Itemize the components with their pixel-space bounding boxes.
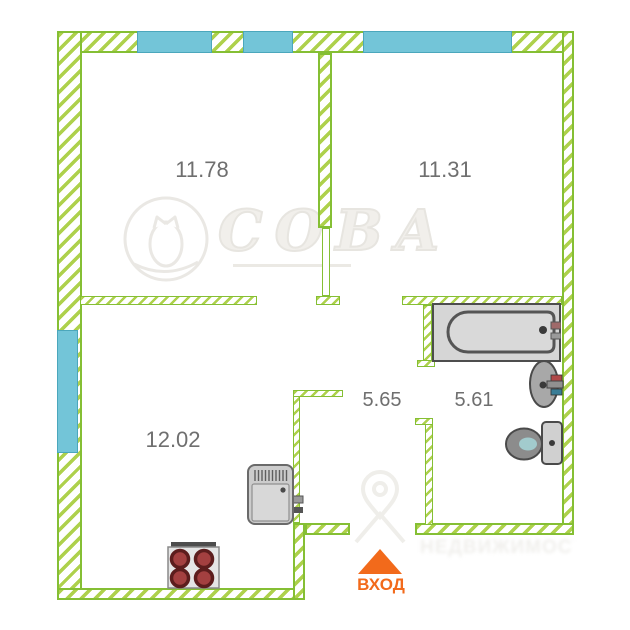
toilet-icon xyxy=(504,420,564,466)
room-area-label-hallway: 5.65 xyxy=(347,389,417,412)
door-leaf-kitchen xyxy=(293,390,343,397)
entrance-arrow-up-icon xyxy=(358,549,402,574)
window-top-2 xyxy=(243,31,293,53)
entrance-label: ВХОД xyxy=(346,575,416,595)
window-top-3 xyxy=(363,31,512,53)
watermark-text-fragment: НЕДВИЖИМОСТЬ xyxy=(420,537,573,558)
owl-logo-icon xyxy=(118,194,222,291)
room-area-label-bathroom: 5.61 xyxy=(439,389,509,412)
wall-entrance-left xyxy=(305,523,350,535)
wall-middle xyxy=(318,53,332,228)
wall-cap-bath-lower xyxy=(415,418,433,425)
window-left xyxy=(57,330,78,453)
watermark-underline xyxy=(233,264,351,267)
wall-left xyxy=(57,31,82,600)
sova-watermark-text: СОВА xyxy=(218,198,452,264)
bathtub-icon xyxy=(432,303,561,362)
wall-bottom-left xyxy=(57,588,305,600)
room-area-label-top-left: 11.78 xyxy=(157,157,247,183)
wall-bathroom-left-upper xyxy=(423,305,432,362)
wall-kitchen-right xyxy=(293,523,305,600)
window-top-1 xyxy=(137,31,212,53)
map-pin-icon xyxy=(348,468,412,551)
door-leaf-room xyxy=(322,228,330,296)
room-area-label-kitchen: 12.02 xyxy=(128,427,218,453)
floor-plan: СОВА НЕДВИЖИМОСТЬ 11.78 11.31 12.02 5.65… xyxy=(0,0,630,630)
sink-icon xyxy=(529,360,564,409)
wall-partition-left xyxy=(80,296,257,305)
wall-cap-middle xyxy=(316,296,340,305)
room-area-label-top-right: 11.31 xyxy=(400,157,490,183)
wall-bottom-right xyxy=(415,523,574,535)
stove-icon xyxy=(167,542,220,589)
wall-bathroom-left-lower xyxy=(425,418,433,525)
refrigerator-icon xyxy=(247,463,304,526)
